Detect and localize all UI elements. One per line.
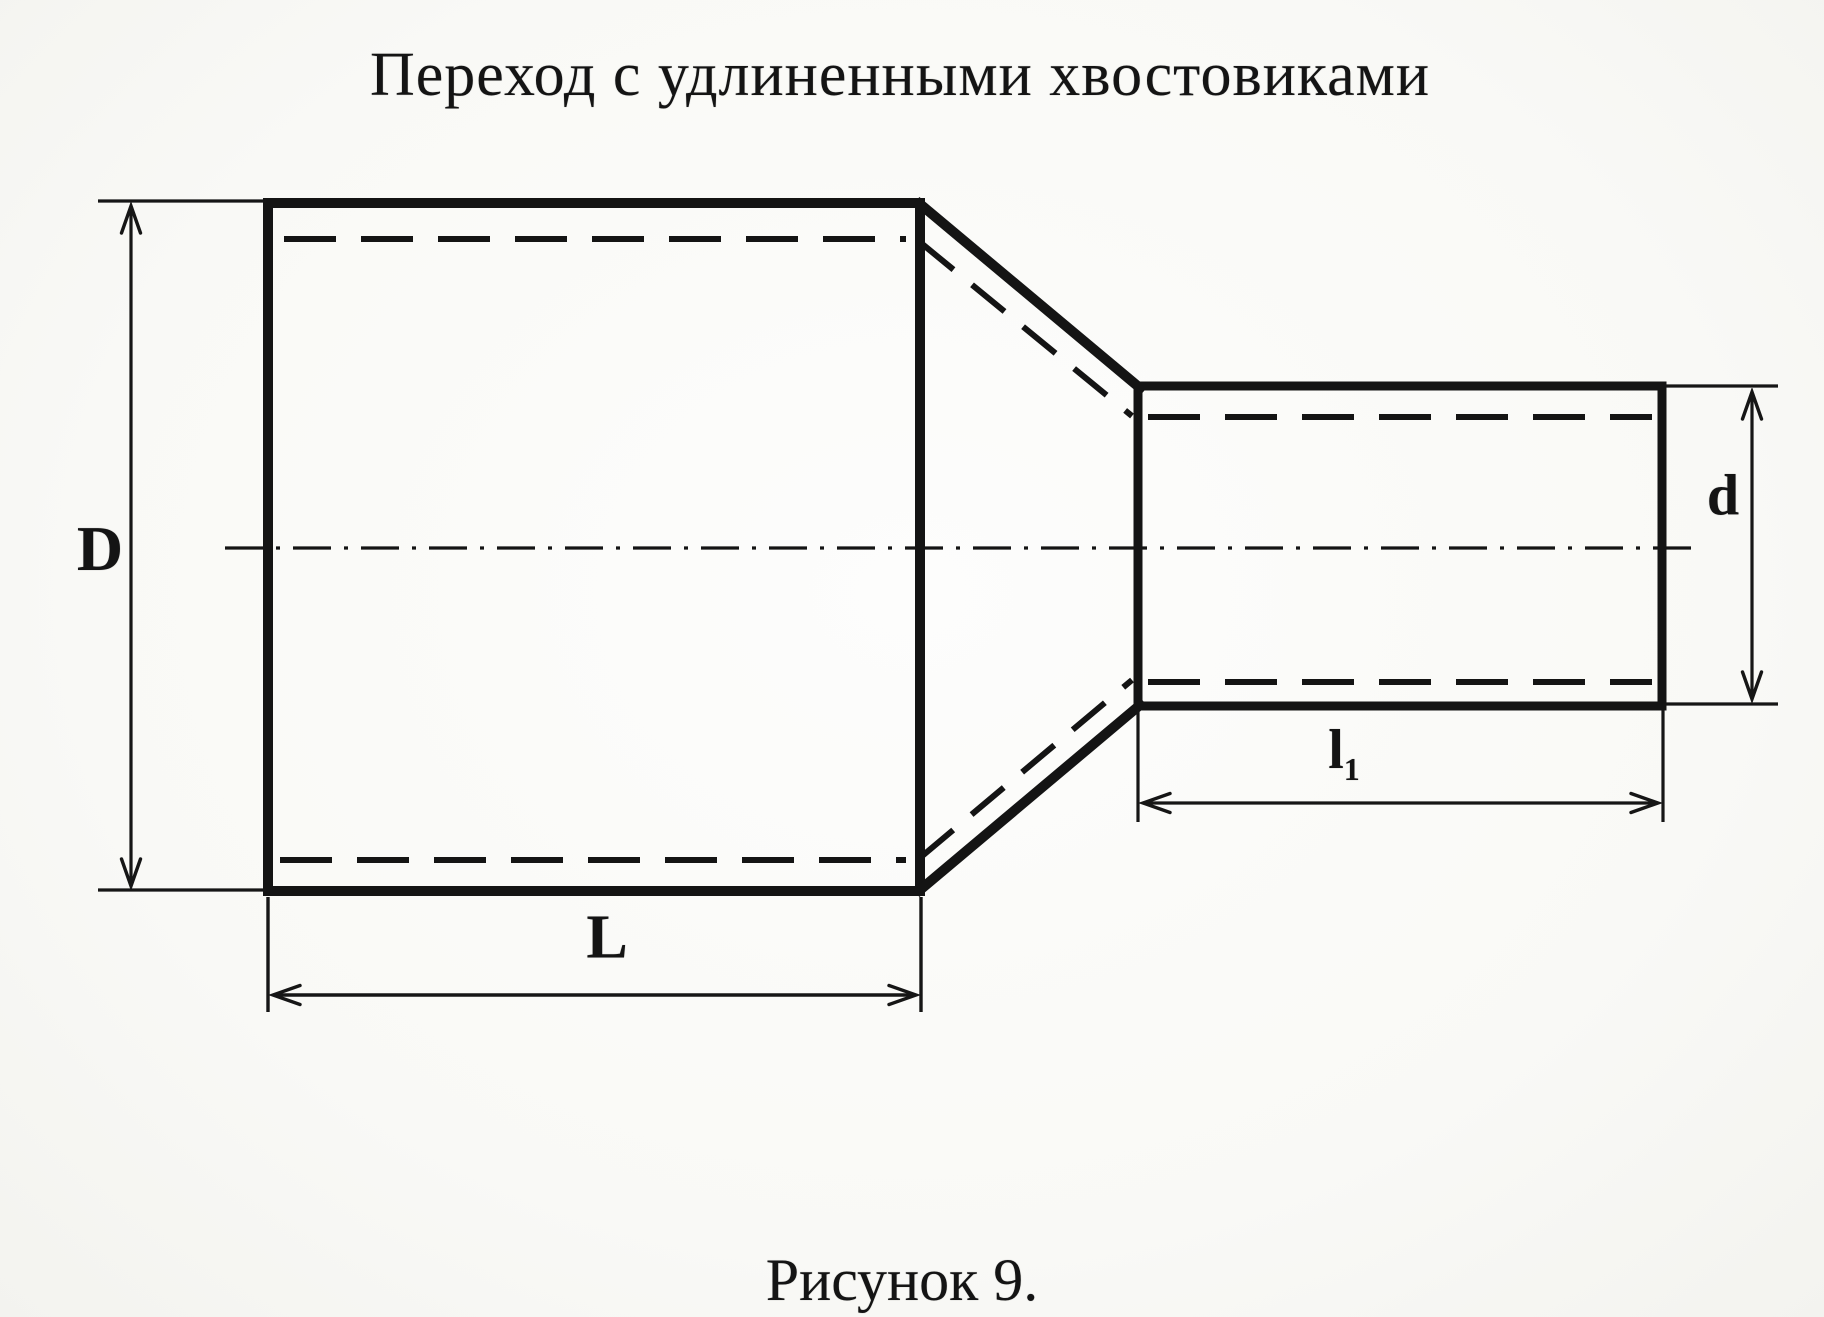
dim-label-l1-subscript: 1 bbox=[1344, 751, 1360, 787]
dimension-d bbox=[1666, 386, 1778, 704]
scanned-drawing-page: Переход с удлиненными хвостовиками bbox=[0, 0, 1824, 1317]
inner-wall-dashed-lines bbox=[280, 239, 1652, 860]
small-pipe-body bbox=[1138, 386, 1662, 706]
dim-label-d: d bbox=[1707, 462, 1739, 529]
dim-label-D: D bbox=[77, 512, 123, 586]
reducer-diagram bbox=[0, 0, 1824, 1317]
dim-label-L: L bbox=[586, 903, 627, 974]
cone-top-edge bbox=[920, 204, 1140, 388]
cone-inner-top bbox=[921, 243, 1132, 416]
dim-label-l1-base: l bbox=[1328, 719, 1344, 781]
dim-label-l1: l1 bbox=[1328, 718, 1360, 788]
cone-bottom-edge bbox=[920, 705, 1140, 890]
figure-caption: Рисунок 9. bbox=[766, 1246, 1039, 1315]
dimension-l1 bbox=[1138, 710, 1663, 822]
dimension-D bbox=[98, 201, 266, 890]
cone-inner-bottom bbox=[921, 680, 1132, 857]
